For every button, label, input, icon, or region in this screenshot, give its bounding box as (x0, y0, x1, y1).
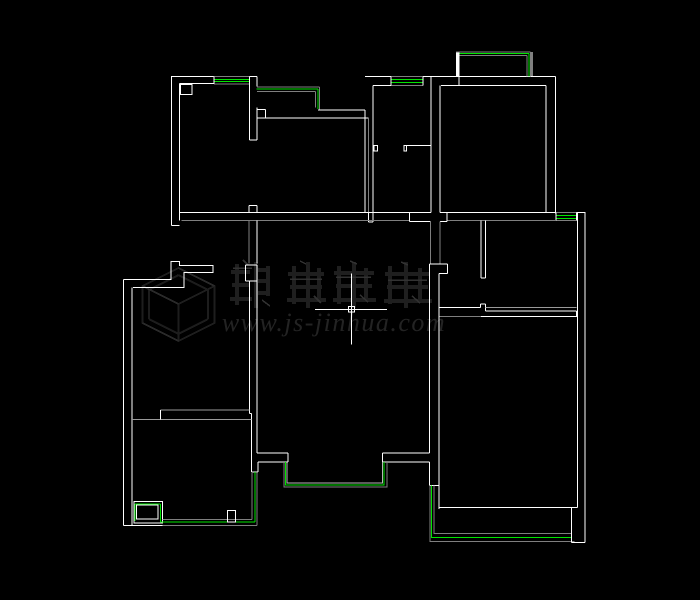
svg-text:www.js-jinhua.com: www.js-jinhua.com (222, 308, 446, 337)
